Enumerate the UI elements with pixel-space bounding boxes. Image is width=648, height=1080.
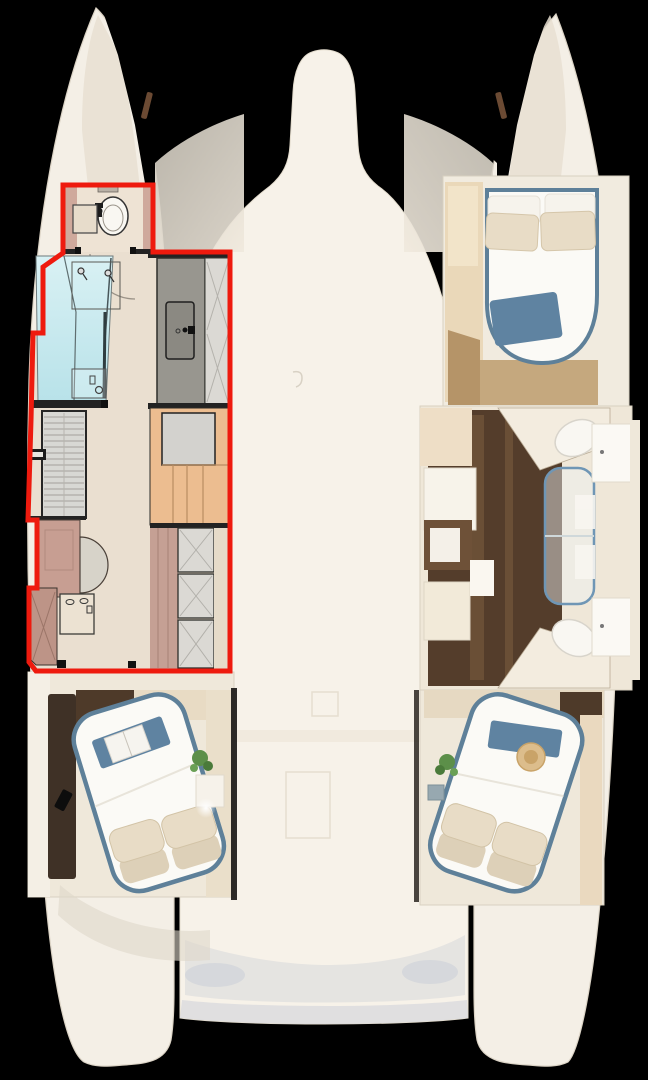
bath-right-wall (630, 420, 640, 680)
utility-counter (37, 520, 80, 597)
wardrobe-hatched (205, 258, 230, 406)
cabin-sa-gap (414, 690, 419, 902)
closet-side-panel (150, 528, 178, 671)
toilet-bowl (98, 197, 128, 235)
floorplan-canvas (0, 0, 648, 1080)
cabin-pa-gap (231, 688, 237, 900)
shower-wall-bottom (31, 400, 107, 408)
cabin-sf-wood-shadow (448, 330, 480, 405)
cabin-sf-wardrobe-panel (448, 186, 478, 266)
cockpit-seat-shadow-starboard (402, 960, 458, 984)
shower-drain-box (72, 369, 106, 398)
door-jamb-right (130, 247, 136, 254)
bathroom-starboard (420, 406, 640, 690)
bath-shelf-center (470, 560, 494, 596)
shower-wall-jamb (101, 400, 108, 408)
utility-door-jamb (128, 661, 136, 668)
cabin-starboard-aft (414, 687, 604, 905)
bed-sf-blanket (489, 291, 563, 346)
door-jamb-left (75, 247, 81, 254)
bath-cabinet-bottom (424, 582, 470, 640)
speaker-box (428, 785, 444, 800)
lamp-glow-port (196, 798, 216, 818)
dressing-closets (150, 528, 230, 671)
bath-cabinet-top (420, 408, 472, 466)
washer-unit (60, 594, 94, 634)
cabin-starboard-forward (443, 176, 629, 406)
companionway-stairs (148, 403, 230, 528)
closet-units (178, 528, 214, 668)
stairs-wall-bottom (150, 523, 230, 528)
cabin-pa-left-wall (28, 672, 50, 897)
straw-hat (517, 743, 545, 771)
stairs-landing (162, 413, 215, 465)
cabin-pa-sideboard (48, 694, 76, 879)
sink-starboard-fwd (592, 424, 632, 482)
sink-starboard-aft (592, 598, 632, 656)
cockpit-seat-shadow-port (185, 963, 245, 987)
bath-mirror (430, 528, 460, 562)
louver-handle-inner (32, 452, 43, 457)
catamaran-floorplan (0, 0, 648, 1080)
utility-wall-corner (57, 660, 66, 668)
toilet-room-cabinet (73, 205, 97, 233)
vanity-area (148, 252, 230, 406)
